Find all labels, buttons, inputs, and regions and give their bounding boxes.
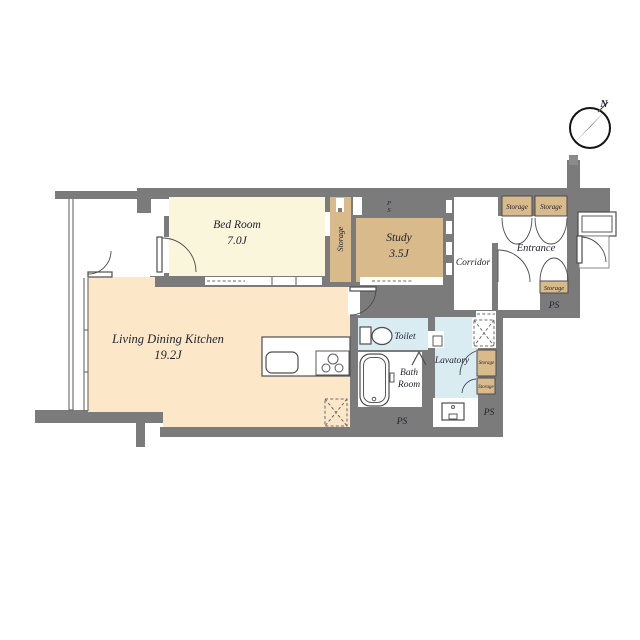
bedroom-door-leaf[interactable]: [157, 237, 162, 272]
wall-top-left-bar: [55, 191, 147, 199]
bedroom-storage-label: Storage: [336, 226, 345, 251]
corridor-label: Corridor: [456, 258, 491, 268]
wall-ldk-bottom-bar: [160, 427, 346, 437]
toilet-label: Toilet: [394, 332, 416, 342]
compass-base-square: [569, 155, 578, 165]
study-label: Study: [386, 232, 412, 244]
floor-plan-page: Living Dining Kitchen 19.2J Bed Room 7.0…: [0, 0, 640, 640]
ps-entrance-label: PS: [548, 301, 560, 311]
ldk-window-wall: [84, 278, 88, 411]
wall-top-right-block: [580, 188, 610, 213]
bedroom-divider-slot: [325, 212, 330, 236]
study-wall-slot-2: [446, 221, 452, 234]
study-wall-slot-3: [446, 242, 452, 255]
ps-wall-top-p: P: [386, 200, 391, 207]
ldk-size: 19.2J: [154, 348, 183, 362]
wall-bottom-spur: [136, 421, 145, 447]
bath-label-line1: Bath: [400, 368, 418, 378]
ldk-corridor-door-leaf[interactable]: [350, 287, 376, 291]
room-corridor-floor: [454, 197, 492, 310]
room-bedroom-floor: [169, 197, 325, 276]
bedroom-size: 7.0J: [227, 235, 247, 247]
bedroom-label: Bed Room: [213, 219, 261, 231]
wall-notch: [137, 199, 151, 213]
corridor-entrance-opening: [492, 197, 498, 243]
kitchen-sink: [266, 352, 298, 373]
ps-bath-label: PS: [396, 417, 408, 427]
balcony-door-leaf[interactable]: [88, 272, 112, 277]
entrance-storage-left-label: Storage: [506, 203, 528, 211]
entrance-label: Entrance: [516, 243, 556, 254]
ldk-label: Living Dining Kitchen: [111, 332, 224, 346]
bath-label-line2: Room: [397, 380, 420, 390]
lavatory-storage-upper-label: Storage: [479, 361, 495, 366]
balcony-door-arc: [88, 251, 111, 274]
entrance-storage-right-label: Storage: [540, 203, 562, 211]
compass-north-label: N: [599, 99, 608, 110]
toilet-fixture: [360, 327, 392, 345]
floor-plan: Living Dining Kitchen 19.2J Bed Room 7.0…: [0, 0, 640, 640]
bedroom-door-gap: [163, 237, 169, 273]
study-wall-slot-1: [446, 200, 452, 213]
study-wall-slot-4: [446, 263, 452, 275]
entrance-storage-lower-label: Storage: [544, 285, 564, 292]
balcony-outer-wall: [69, 199, 73, 410]
front-door-leaf[interactable]: [577, 236, 582, 263]
lavatory-label: Lavatory: [434, 356, 470, 366]
toilet-bowl: [372, 328, 392, 345]
ps-lavatory-label: PS: [483, 408, 495, 418]
bedroom-window: [247, 277, 322, 285]
study-top-slot: [353, 197, 362, 215]
study-size: 3.5J: [388, 248, 409, 260]
compass-circle: [570, 108, 610, 148]
storage-top-tick: [338, 208, 342, 212]
room-entrance-lower-floor: [498, 282, 540, 310]
lavatory-storage-lower-label: Storage: [478, 385, 494, 390]
bedroom-left-slot: [164, 199, 169, 216]
toilet-tank: [360, 327, 371, 344]
compass: N: [569, 99, 610, 165]
wall-top-bridge: [137, 188, 167, 199]
